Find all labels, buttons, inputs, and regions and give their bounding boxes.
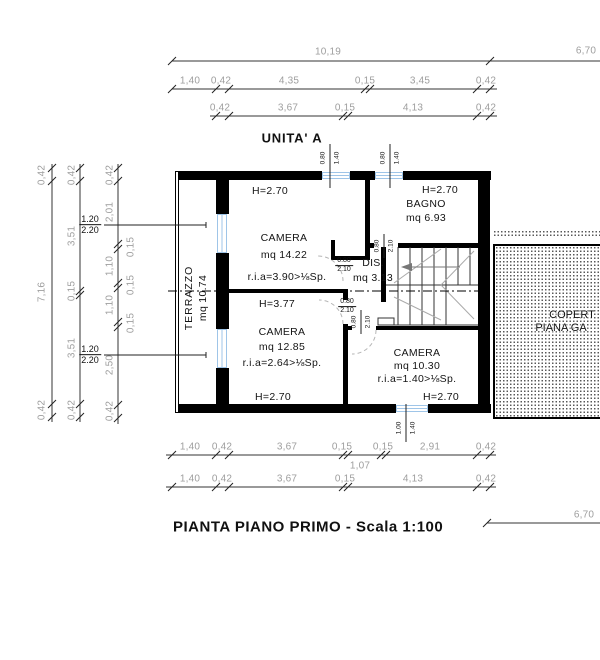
dim-label: 0,42 — [37, 165, 48, 185]
dim-label: 0,15 — [332, 442, 352, 453]
dim-label: 0,15 — [126, 275, 137, 295]
dim-label: 0,15 — [335, 474, 355, 485]
dim-label: 0,15 — [355, 76, 375, 87]
dim-label: 0,42 — [212, 474, 232, 485]
garage-roof-label-line2: PIANA GA — [535, 322, 586, 334]
dim-label: 4,13 — [403, 474, 423, 485]
camera3-ria: r.i.a=1.40>⅛Sp. — [378, 373, 457, 385]
dim-label: 0,42 — [37, 400, 48, 420]
dim-label: 10,19 — [315, 47, 341, 58]
dim-label: 3,67 — [277, 442, 297, 453]
dim-label: 1,40 — [180, 442, 200, 453]
unit-label: UNITA' A — [262, 131, 323, 146]
stairs — [378, 247, 478, 325]
camera2-name: CAMERA — [259, 326, 306, 338]
camera3-name: CAMERA — [394, 347, 441, 359]
door-size-label: 0.802.10 — [338, 298, 356, 316]
room-terrazzo-area: mq 10.74 — [197, 275, 209, 321]
camera1-height: H=2.70 — [252, 185, 288, 197]
room-terrazzo-name: TERRAZZO — [183, 266, 195, 331]
dim-label: 3,67 — [277, 474, 297, 485]
dim-label: 6,70 — [574, 510, 594, 521]
door-size-label: 0.80 — [351, 316, 358, 329]
dim-label: 0,15 — [335, 103, 355, 114]
dim-label: 2,50 — [105, 355, 116, 375]
camera1-area: mq 14.22 — [261, 249, 307, 261]
window-size-label: 1.40 — [394, 152, 401, 165]
dis-name: DIS. — [362, 257, 384, 269]
dim-label: 0,42 — [105, 165, 116, 185]
dim-label: 0,42 — [67, 400, 78, 420]
camera1-name: CAMERA — [261, 232, 308, 244]
window-size-label: 0.80 — [320, 152, 327, 165]
dim-label: 2,91 — [420, 442, 440, 453]
dim-label: 3,67 — [278, 103, 298, 114]
camera1-ria: r.i.a=3.90>⅛Sp. — [248, 271, 327, 283]
drawing-title: PIANTA PIANO PRIMO - Scala 1:100 — [173, 519, 443, 536]
dim-label: 1,40 — [180, 474, 200, 485]
dim-label: 3,51 — [67, 226, 78, 246]
bagno-area: mq 6.93 — [406, 212, 446, 224]
dim-label: 1,10 — [105, 256, 116, 276]
bagno-name: BAGNO — [406, 198, 445, 210]
dim-label: 0,15 — [373, 442, 393, 453]
dim-label: 0,15 — [126, 313, 137, 333]
dim-label: 0,42 — [212, 442, 232, 453]
dim-label: 7,16 — [37, 282, 48, 302]
bagno-height: H=2.70 — [422, 184, 458, 196]
dim-label: 0,15 — [126, 237, 137, 257]
dim-label: 1,10 — [105, 295, 116, 315]
dim-label: 4,13 — [403, 103, 423, 114]
dim-label: 0,42 — [67, 165, 78, 185]
camera2-ridge-height: H=3.77 — [259, 298, 295, 310]
window-size-label: 1.40 — [410, 422, 417, 435]
dim-label: 3,45 — [410, 76, 430, 87]
dim-label: 1,07 — [350, 461, 370, 472]
door-size-label: 2.10 — [388, 240, 395, 253]
dim-label: 2,01 — [105, 202, 116, 222]
door-size-label: 2.10 — [365, 316, 372, 329]
door-size-label: 0.80 — [374, 240, 381, 253]
garage-roof-label-line1: COPERT — [549, 309, 595, 321]
camera2-area: mq 12.85 — [259, 341, 305, 353]
dim-label: 0,42 — [476, 442, 496, 453]
dim-label: 0,42 — [211, 76, 231, 87]
window-size-label: 1.202.20 — [79, 344, 101, 366]
stairs-up-arrow — [401, 263, 412, 271]
window-size-label: 1.00 — [396, 422, 403, 435]
dim-label: 3,51 — [67, 338, 78, 358]
dim-label: 0,42 — [476, 103, 496, 114]
dim-label: 0,15 — [67, 281, 78, 301]
camera3-height: H=2.70 — [423, 391, 459, 403]
camera2-ria: r.i.a=2.64>⅛Sp. — [243, 357, 322, 369]
dim-label: 6,70 — [576, 46, 596, 57]
floor-plan-canvas: UNITA' A PIANTA PIANO PRIMO - Scala 1:10… — [0, 0, 600, 660]
window-size-label: 0.80 — [380, 152, 387, 165]
dis-area: mq 3.13 — [353, 272, 393, 284]
window-size-label: 1.40 — [334, 152, 341, 165]
window-size-label: 1.202.20 — [79, 214, 101, 236]
camera3-area: mq 10.30 — [394, 360, 440, 372]
dim-label: 4,35 — [279, 76, 299, 87]
camera2-height: H=2.70 — [255, 391, 291, 403]
door-size-label: 0.802.10 — [335, 257, 353, 275]
dim-label: 0,42 — [105, 401, 116, 421]
dim-label: 0,42 — [210, 103, 230, 114]
dim-label: 1,40 — [180, 76, 200, 87]
dim-label: 0,42 — [476, 474, 496, 485]
dim-label: 0,42 — [476, 76, 496, 87]
